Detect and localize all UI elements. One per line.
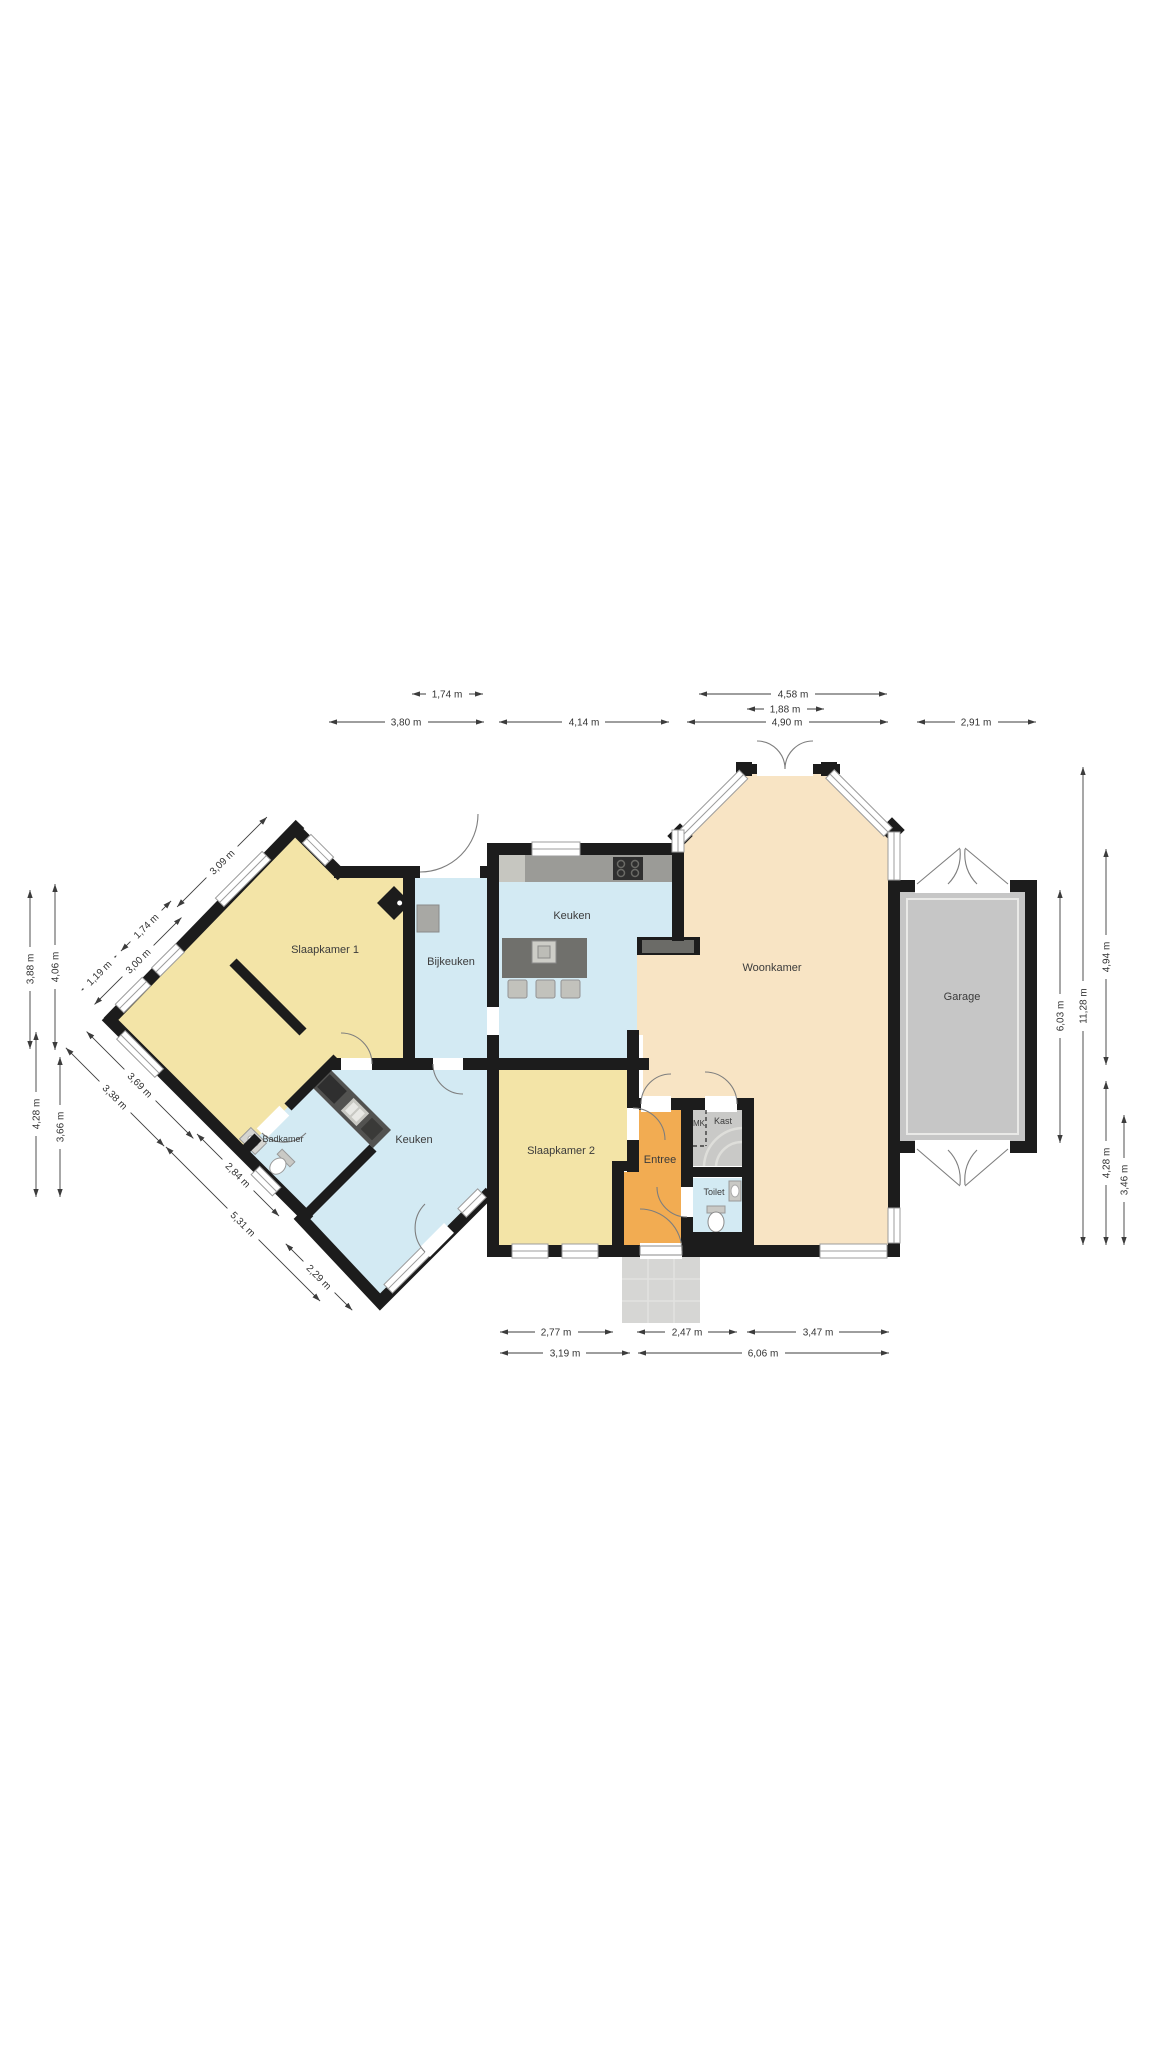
svg-text:1,88 m: 1,88 m bbox=[770, 705, 801, 716]
wall-toilet-bottom bbox=[687, 1232, 754, 1257]
svg-text:1,74 m: 1,74 m bbox=[432, 690, 463, 701]
label-garage: Garage bbox=[944, 991, 981, 1003]
dim-bottom-319: 3,19 m bbox=[500, 1347, 630, 1360]
dim-bottom-347: 3,47 m bbox=[747, 1326, 889, 1339]
svg-text:4,28 m: 4,28 m bbox=[1102, 1148, 1113, 1179]
dim-diag-119: 1,19 m bbox=[77, 951, 120, 994]
dim-top-291: 2,91 m bbox=[917, 716, 1036, 729]
sideboard bbox=[642, 940, 694, 953]
label-badkamer: Badkamer bbox=[262, 1134, 303, 1144]
label-woonkamer: Woonkamer bbox=[742, 962, 801, 974]
dim-bottom-247: 2,47 m bbox=[637, 1326, 737, 1339]
wc-sink-basin bbox=[731, 1185, 739, 1197]
dim-right-494: 4,94 m bbox=[1100, 849, 1113, 1065]
dim-top-188: 1,88 m bbox=[747, 703, 824, 716]
washer bbox=[417, 905, 439, 932]
bar-stools bbox=[508, 980, 580, 998]
garage-floor bbox=[900, 892, 1025, 1141]
slaapkamer2-floor bbox=[499, 1070, 627, 1245]
label-entree: Entree bbox=[644, 1154, 676, 1166]
svg-text:3,69 m: 3,69 m bbox=[125, 1071, 154, 1100]
porch bbox=[622, 1257, 700, 1323]
label-mk: MK bbox=[693, 1119, 706, 1128]
svg-text:4,06 m: 4,06 m bbox=[51, 952, 62, 983]
svg-text:5,31 m: 5,31 m bbox=[228, 1210, 257, 1239]
dim-top-490: 4,90 m bbox=[687, 716, 888, 729]
svg-text:3,09 m: 3,09 m bbox=[208, 848, 237, 877]
window-bay-right-vert bbox=[888, 832, 900, 880]
dim-top-174: 1,74 m bbox=[412, 688, 483, 701]
opening-bijkeuken-wall bbox=[487, 1007, 499, 1035]
dim-top-414: 4,14 m bbox=[499, 716, 669, 729]
svg-text:1,19 m: 1,19 m bbox=[85, 959, 114, 988]
window-woonkamer-east bbox=[888, 1208, 900, 1243]
svg-text:1,74 m: 1,74 m bbox=[132, 912, 161, 941]
label-bijkeuken: Bijkeuken bbox=[427, 956, 475, 968]
svg-text:2,47 m: 2,47 m bbox=[672, 1328, 703, 1339]
island-sink-basin bbox=[538, 946, 550, 958]
dim-left-366: 3,66 m bbox=[54, 1057, 67, 1197]
label-slaapkamer1: Slaapkamer 1 bbox=[291, 944, 359, 956]
door-bay-double bbox=[757, 741, 813, 776]
floor-plan-page: Slaapkamer 1 Bijkeuken Keuken Woonkamer … bbox=[0, 0, 1152, 2048]
svg-text:3,66 m: 3,66 m bbox=[56, 1112, 67, 1143]
door-garage-bottom bbox=[915, 1140, 1010, 1186]
svg-text:3,19 m: 3,19 m bbox=[550, 1349, 581, 1360]
dim-left-428: 4,28 m bbox=[30, 1032, 43, 1197]
label-kast: Kast bbox=[714, 1116, 733, 1126]
svg-text:4,28 m: 4,28 m bbox=[32, 1099, 43, 1130]
svg-text:4,94 m: 4,94 m bbox=[1102, 942, 1113, 973]
floor-plan: Slaapkamer 1 Bijkeuken Keuken Woonkamer … bbox=[0, 0, 1152, 2048]
window-slaapkamer2-a bbox=[512, 1244, 548, 1258]
label-slaapkamer2: Slaapkamer 2 bbox=[527, 1145, 595, 1157]
dim-bottom-606: 6,06 m bbox=[638, 1347, 889, 1360]
dim-right-346: 3,46 m bbox=[1118, 1115, 1131, 1245]
window-keuken-top bbox=[532, 842, 580, 856]
svg-text:6,06 m: 6,06 m bbox=[748, 1349, 779, 1360]
svg-text:2,91 m: 2,91 m bbox=[961, 718, 992, 729]
dim-left-388: 3,88 m bbox=[24, 890, 37, 1049]
window-woonkamer-bottom bbox=[820, 1244, 887, 1258]
label-toilet: Toilet bbox=[703, 1187, 725, 1197]
dim-right-603: 6,03 m bbox=[1054, 890, 1067, 1143]
window-slaapkamer2-b bbox=[562, 1244, 598, 1258]
svg-text:3,47 m: 3,47 m bbox=[803, 1328, 834, 1339]
window-bay-left-vert bbox=[672, 830, 684, 852]
svg-text:4,58 m: 4,58 m bbox=[778, 690, 809, 701]
wc-bowl bbox=[708, 1212, 724, 1232]
svg-text:4,14 m: 4,14 m bbox=[569, 718, 600, 729]
cooktop bbox=[613, 857, 643, 880]
svg-text:3,88 m: 3,88 m bbox=[26, 954, 37, 985]
dim-top-380: 3,80 m bbox=[329, 716, 484, 729]
svg-text:6,03 m: 6,03 m bbox=[1056, 1001, 1067, 1032]
dim-right-1128: 11,28 m bbox=[1077, 767, 1090, 1245]
svg-text:3,46 m: 3,46 m bbox=[1120, 1165, 1131, 1196]
svg-text:4,90 m: 4,90 m bbox=[772, 718, 803, 729]
svg-text:11,28 m: 11,28 m bbox=[1079, 988, 1090, 1023]
door-bijkeuken-exterior bbox=[420, 814, 480, 878]
dim-bottom-277: 2,77 m bbox=[500, 1326, 613, 1339]
label-keuken-boven: Keuken bbox=[553, 910, 590, 922]
door-garage-top bbox=[915, 848, 1010, 893]
dim-right-428: 4,28 m bbox=[1100, 1081, 1113, 1245]
svg-text:3,80 m: 3,80 m bbox=[391, 718, 422, 729]
svg-text:3,38 m: 3,38 m bbox=[100, 1083, 129, 1112]
kitchen-sink-section bbox=[499, 855, 525, 882]
dim-left-406: 4,06 m bbox=[49, 884, 62, 1050]
svg-text:2,77 m: 2,77 m bbox=[541, 1328, 572, 1339]
dim-top-458: 4,58 m bbox=[699, 688, 887, 701]
label-keuken: Keuken bbox=[395, 1134, 432, 1146]
svg-text:2,29 m: 2,29 m bbox=[304, 1263, 333, 1292]
